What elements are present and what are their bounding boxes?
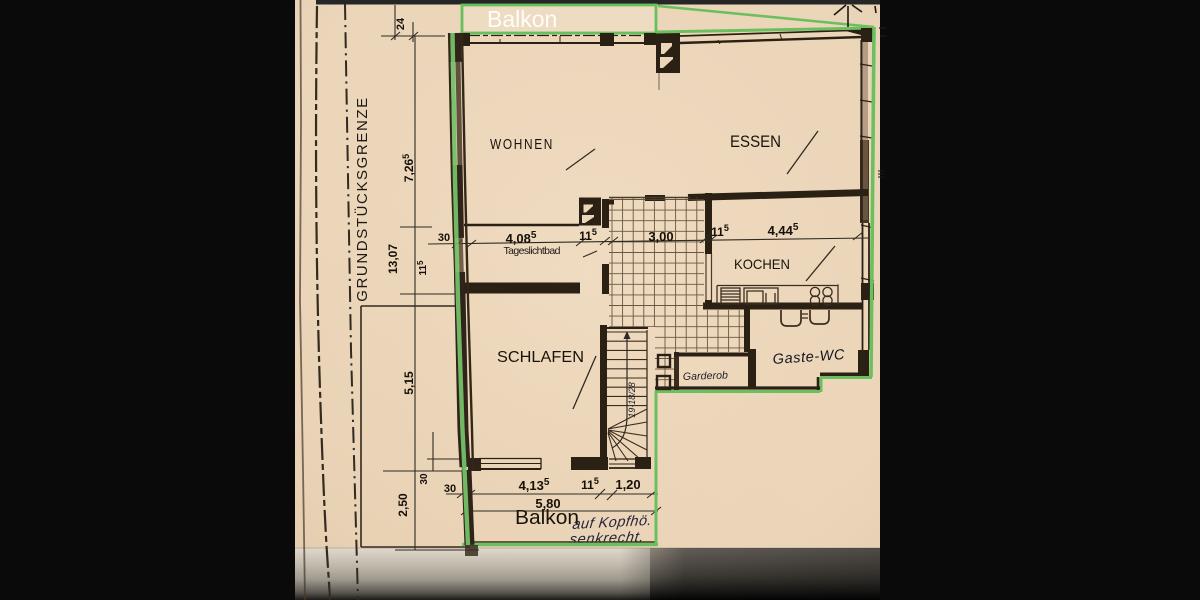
svg-text:30: 30 bbox=[444, 483, 456, 495]
svg-text:24: 24 bbox=[395, 17, 407, 30]
svg-text:WOHNEN: WOHNEN bbox=[490, 137, 554, 153]
svg-text:KOCHEN: KOCHEN bbox=[734, 256, 790, 272]
svg-text:19·18/28: 19·18/28 bbox=[627, 382, 637, 418]
svg-text:5,15: 5,15 bbox=[402, 371, 416, 395]
svg-text:Balkon: Balkon bbox=[487, 6, 557, 32]
svg-text:GRUNDSTÜCKSGRENZE: GRUNDSTÜCKSGRENZE bbox=[353, 96, 371, 302]
svg-text:13,07: 13,07 bbox=[386, 244, 400, 274]
svg-text:Balkon: Balkon bbox=[515, 506, 579, 529]
svg-text:1,20: 1,20 bbox=[615, 477, 640, 492]
svg-text:ESSEN: ESSEN bbox=[730, 132, 781, 151]
svg-text:30: 30 bbox=[438, 232, 450, 244]
svg-text:3,00: 3,00 bbox=[648, 229, 673, 244]
svg-text:SCHLAFEN: SCHLAFEN bbox=[497, 349, 584, 366]
svg-text:Garderob: Garderob bbox=[683, 369, 729, 383]
svg-text:Tageslichtbad: Tageslichtbad bbox=[504, 245, 561, 257]
svg-text:30: 30 bbox=[419, 473, 430, 485]
svg-text:2,50: 2,50 bbox=[396, 493, 410, 517]
